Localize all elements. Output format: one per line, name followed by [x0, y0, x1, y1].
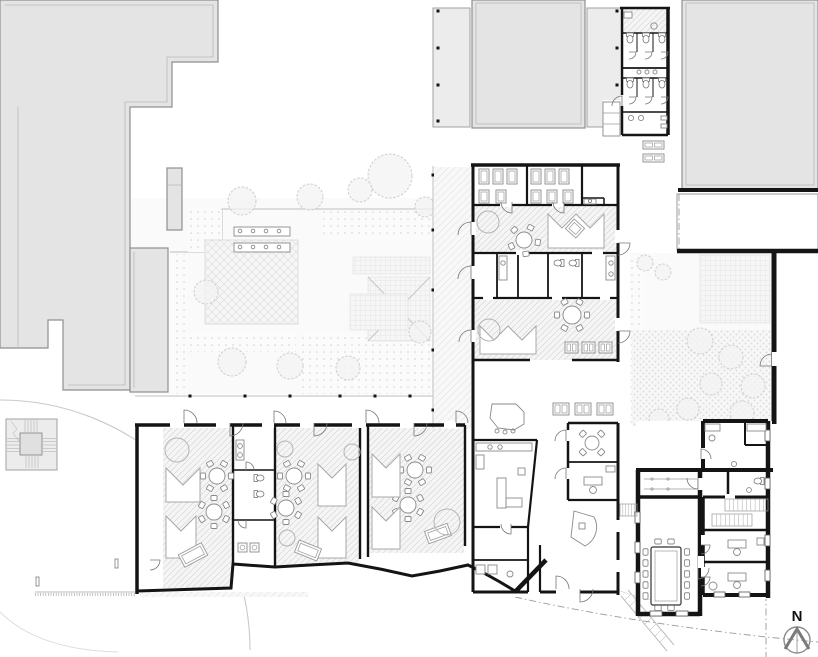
- shape: [216, 421, 230, 428]
- crib-bed: [507, 169, 517, 184]
- floor-plan-canvas: N: [0, 0, 818, 657]
- toilet-fixture: [627, 33, 634, 43]
- window: [635, 572, 640, 583]
- column-dot: [616, 84, 619, 87]
- shape: [772, 352, 778, 366]
- chair: [685, 571, 690, 578]
- chair: [643, 593, 648, 600]
- shape: [757, 538, 764, 545]
- tree: [719, 345, 743, 369]
- tree: [336, 356, 360, 380]
- planter-box: [234, 227, 290, 236]
- desk: [728, 540, 746, 548]
- tree: [368, 154, 412, 198]
- pergola: [353, 257, 430, 274]
- toilet-fixture: [659, 78, 666, 88]
- chair: [668, 539, 675, 544]
- window: [739, 592, 750, 597]
- toilet-fixture: [254, 475, 264, 482]
- shape: [476, 455, 484, 469]
- crib-bed: [531, 190, 541, 203]
- chair: [685, 549, 690, 556]
- paved-terrace: [700, 255, 770, 323]
- kitchen-counter: [476, 443, 532, 451]
- tree: [228, 187, 256, 215]
- crib-bed: [563, 190, 573, 203]
- shape: [499, 256, 507, 280]
- tree: [655, 264, 671, 280]
- chair: [643, 560, 648, 567]
- chair: [643, 582, 648, 589]
- crib-bed: [493, 169, 503, 184]
- shape: [624, 12, 632, 18]
- shape: [701, 567, 706, 577]
- toilet-fixture: [659, 33, 666, 43]
- shape: [552, 295, 562, 300]
- window: [765, 430, 770, 441]
- shape: [747, 424, 766, 431]
- shape: [566, 468, 571, 479]
- sandpit: [205, 240, 298, 324]
- tree: [637, 255, 653, 271]
- shape: [488, 565, 497, 574]
- floor-plan: N: [0, 0, 818, 657]
- shape: [579, 523, 585, 529]
- shape: [471, 330, 476, 342]
- window: [635, 542, 640, 553]
- desk: [584, 477, 602, 485]
- column-dot: [189, 395, 192, 398]
- toilet-fixture: [754, 478, 764, 485]
- shape: [620, 95, 625, 106]
- shape: [705, 424, 720, 431]
- column-dot: [437, 47, 440, 50]
- kitchen-island: [506, 498, 522, 507]
- shape: [556, 589, 580, 596]
- bench: [643, 154, 664, 162]
- toilet-fixture: [569, 260, 579, 267]
- shape: [250, 543, 259, 552]
- tree: [218, 348, 246, 376]
- bench: [553, 403, 569, 415]
- planting-bed: [171, 254, 187, 394]
- tree: [194, 280, 218, 304]
- chair: [685, 560, 690, 567]
- shape: [300, 421, 314, 428]
- tree: [415, 197, 435, 217]
- chair: [655, 539, 662, 544]
- toilet-fixture: [643, 78, 650, 88]
- shape: [262, 421, 274, 428]
- chair: [668, 606, 675, 611]
- shape: [606, 466, 615, 472]
- vegetable-beds: [350, 294, 408, 330]
- crib-bed: [547, 190, 557, 203]
- chair: [655, 606, 662, 611]
- bench: [582, 342, 595, 353]
- shape: [483, 295, 493, 300]
- chair: [685, 593, 690, 600]
- toilet-fixture: [627, 78, 634, 88]
- tree: [409, 321, 431, 343]
- shape: [661, 124, 667, 128]
- shape: [615, 560, 621, 572]
- tree: [741, 374, 765, 398]
- crib-bed: [479, 169, 489, 184]
- street-post: [115, 559, 118, 568]
- bench: [597, 403, 613, 415]
- chair: [685, 582, 690, 589]
- column-dot: [437, 120, 440, 123]
- shape: [471, 266, 476, 279]
- shape: [238, 543, 247, 552]
- toilet-fixture: [643, 33, 650, 43]
- window: [635, 512, 640, 523]
- column-dot: [409, 395, 412, 398]
- column-dot: [339, 395, 342, 398]
- bench: [575, 403, 591, 415]
- window: [765, 535, 770, 546]
- column-dot: [616, 47, 619, 50]
- existing-annex: [130, 248, 168, 392]
- classroom-floor: [163, 428, 232, 588]
- window: [765, 570, 770, 581]
- chair: [643, 549, 648, 556]
- lockers: [603, 102, 620, 136]
- crib-bed: [531, 169, 541, 184]
- terrace-floor: [434, 167, 472, 429]
- tree: [297, 184, 323, 210]
- terrace-strip: [140, 592, 308, 597]
- existing-building-north: [472, 0, 585, 128]
- bench: [643, 141, 664, 149]
- existing-canopy: [433, 8, 470, 127]
- conference-table: [651, 547, 681, 605]
- chair: [643, 571, 648, 578]
- column-dot: [244, 395, 247, 398]
- window: [765, 478, 770, 489]
- crib-bed: [496, 190, 506, 203]
- column-dot: [437, 10, 440, 13]
- window: [676, 611, 688, 616]
- crib-bed: [545, 169, 555, 184]
- bench: [599, 342, 612, 353]
- planting-bed: [322, 210, 432, 238]
- shape: [592, 250, 603, 255]
- shape: [476, 565, 485, 574]
- shape: [615, 230, 621, 243]
- column-dot: [289, 395, 292, 398]
- tree: [677, 398, 699, 420]
- shape: [615, 318, 621, 331]
- tree: [348, 178, 372, 202]
- existing-building-east: [682, 0, 818, 189]
- tree: [277, 353, 303, 379]
- column-dot: [616, 10, 619, 13]
- shape: [566, 430, 571, 441]
- north-label: N: [792, 608, 803, 625]
- existing-annex: [167, 168, 182, 230]
- tree: [687, 328, 713, 354]
- planter-box: [234, 243, 290, 252]
- shape: [400, 421, 414, 428]
- kitchen-island: [497, 478, 506, 508]
- shape: [518, 468, 525, 475]
- shape: [471, 222, 476, 235]
- shape: [352, 421, 366, 428]
- planting-bed: [188, 332, 296, 352]
- stair-pavilion-core: [20, 433, 42, 455]
- column-dot: [374, 395, 377, 398]
- toilet-fixture: [554, 260, 564, 267]
- shape: [444, 421, 456, 428]
- shape: [698, 478, 704, 490]
- window: [650, 611, 662, 616]
- window: [714, 592, 725, 597]
- shape: [170, 421, 184, 428]
- crib-bed: [479, 190, 489, 203]
- shape: [615, 520, 621, 532]
- column-dot: [437, 84, 440, 87]
- street-post: [36, 577, 39, 586]
- toilet-fixture: [254, 491, 264, 498]
- desk: [728, 573, 746, 581]
- shape: [600, 295, 610, 300]
- shape: [698, 556, 704, 568]
- bench: [565, 342, 578, 353]
- tree: [700, 373, 722, 395]
- shape: [701, 535, 706, 545]
- shape: [661, 116, 667, 120]
- existing-building-gap: [677, 194, 818, 250]
- crib-bed: [559, 169, 569, 184]
